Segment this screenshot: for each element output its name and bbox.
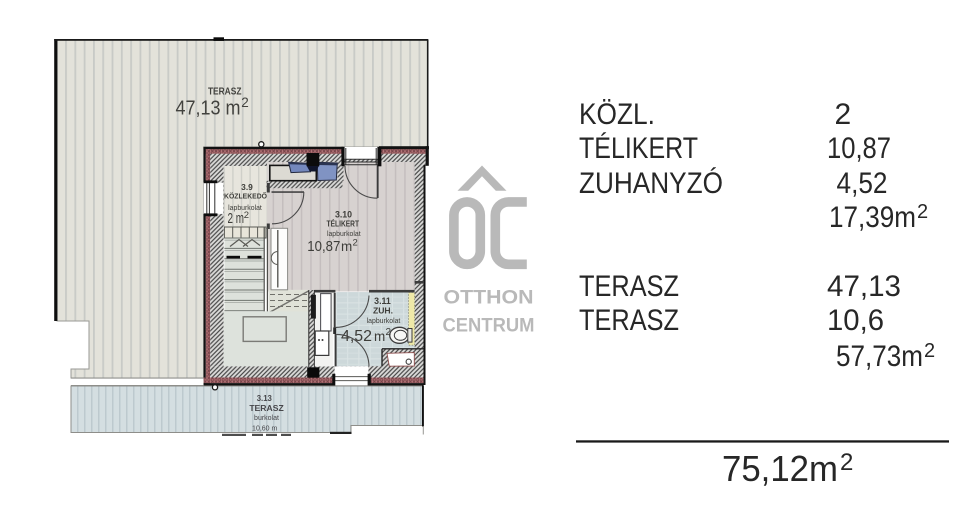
svg-text:2: 2 [917,201,928,223]
svg-text:m: m [341,239,352,254]
svg-text:lapburkolat: lapburkolat [367,318,401,325]
svg-text:TERASZ: TERASZ [249,403,283,413]
svg-text:KÖZL.: KÖZL. [579,98,655,131]
svg-text:OTTHON: OTTHON [444,288,534,309]
svg-text:2 m: 2 m [228,210,245,227]
svg-text:75,12m: 75,12m [722,448,838,489]
svg-text:3.11: 3.11 [374,296,391,306]
svg-text:TERASZ: TERASZ [208,87,242,98]
svg-text:TÉLIKERT: TÉLIKERT [327,217,360,228]
svg-text:2: 2 [840,449,853,476]
svg-text:10,87: 10,87 [827,132,891,165]
svg-text:3.13: 3.13 [257,394,273,403]
svg-text:3.9: 3.9 [241,182,253,192]
svg-text:KÖZLEKEDŐ: KÖZLEKEDŐ [224,192,267,201]
svg-text:4,52: 4,52 [837,167,888,200]
svg-text:10,6: 10,6 [827,304,884,337]
svg-text:2: 2 [353,238,358,249]
svg-text:ZUH.: ZUH. [373,306,393,316]
svg-text:TERASZ: TERASZ [579,304,679,337]
svg-text:m: m [374,329,385,344]
svg-text:4,52: 4,52 [341,328,372,345]
svg-text:10,60 m: 10,60 m [252,426,277,433]
svg-text:TERASZ: TERASZ [579,270,679,303]
svg-text:2: 2 [924,340,935,362]
svg-text:47,13: 47,13 [827,270,901,303]
svg-text:47,13 m: 47,13 m [176,98,241,120]
svg-text:17,39m: 17,39m [829,201,916,234]
svg-text:ZUHANYZÓ: ZUHANYZÓ [579,167,723,200]
svg-text:57,73m: 57,73m [836,340,923,373]
svg-text:2: 2 [386,327,392,338]
svg-text:2: 2 [835,98,852,131]
svg-text:CENTRUM: CENTRUM [443,316,535,337]
svg-text:burkolat: burkolat [254,415,279,422]
svg-text:10,87: 10,87 [307,238,340,255]
svg-text:2: 2 [244,210,249,221]
svg-text:2: 2 [241,95,249,110]
svg-text:TÉLIKERT: TÉLIKERT [579,132,698,165]
